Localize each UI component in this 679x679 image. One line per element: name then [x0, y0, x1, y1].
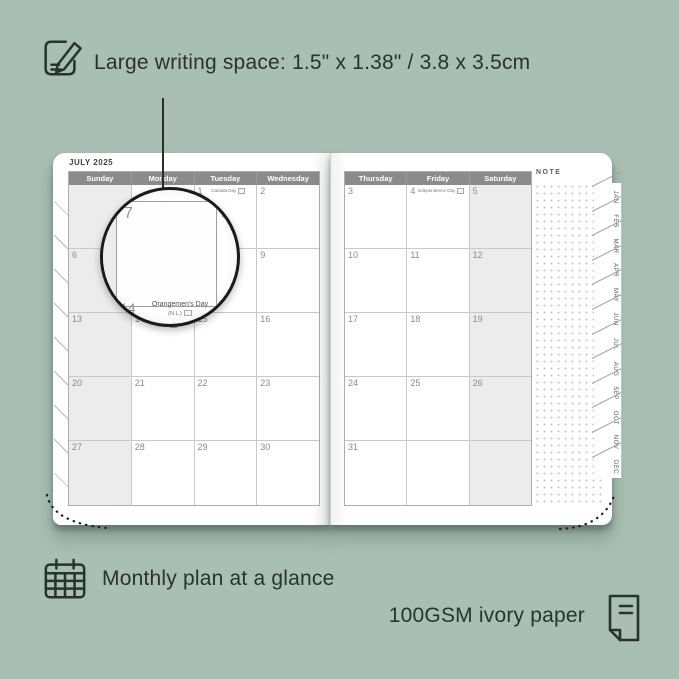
weekday-header: Tuesday	[195, 172, 258, 185]
day-number: 22	[198, 379, 208, 389]
note-label: NOTE	[536, 169, 561, 176]
day-number: 16	[260, 315, 270, 325]
magnified-holiday: Orangemen's Day (N.L.)	[137, 301, 223, 319]
day-number: 18	[410, 315, 420, 325]
flag-icon	[184, 310, 192, 316]
day-number: 3	[348, 187, 353, 197]
calendar-week-row: 20212223	[69, 377, 319, 441]
top-annotation-text: Large writing space: 1.5" x 1.38" / 3.8 …	[94, 51, 530, 82]
day-number: 10	[348, 251, 358, 261]
weekday-header: Friday	[407, 172, 469, 185]
calendar-cell: 20	[69, 377, 132, 441]
product-image: Large writing space: 1.5" x 1.38" / 3.8 …	[0, 0, 679, 679]
weekday-header: Sunday	[69, 172, 132, 185]
magnified-below-day-number: 14	[120, 300, 136, 316]
magnified-holiday-name: Orangemen's Day	[152, 301, 208, 308]
day-number: 31	[348, 443, 358, 453]
calendar-cell	[407, 441, 469, 505]
day-number: 30	[260, 443, 270, 453]
magnified-shaded-column	[103, 190, 117, 324]
magnified-next-day-number: 8	[221, 205, 230, 223]
flag-icon	[238, 188, 245, 194]
day-number: 19	[473, 315, 483, 325]
month-tab: SEP	[594, 380, 622, 405]
holiday-label: Independence Day	[415, 188, 465, 194]
calendar-icon	[42, 556, 88, 602]
month-tab: FEB	[594, 208, 622, 233]
month-tab: DEC	[594, 454, 622, 479]
calendar-cell: 22	[195, 377, 258, 441]
page-seam	[330, 153, 331, 525]
day-number: 28	[135, 443, 145, 453]
calendar-cell: 30	[257, 441, 319, 505]
day-number: 24	[348, 379, 358, 389]
weekday-header: Wednesday	[257, 172, 319, 185]
day-number: 29	[198, 443, 208, 453]
month-tab: OCT	[594, 404, 622, 429]
day-number: 17	[348, 315, 358, 325]
magnified-holiday-region: (N.L.)	[168, 311, 182, 317]
month-title: JULY 2025	[69, 158, 113, 167]
calendar-cell: 4Independence Day	[407, 185, 469, 249]
day-number: 9	[260, 251, 265, 261]
bottom-left-annotation: Monthly plan at a glance	[42, 556, 334, 602]
calendar-cell: 13	[69, 313, 132, 377]
calendar-cell: 31	[345, 441, 407, 505]
month-tab: MAR	[594, 232, 622, 257]
calendar-week-row: 34Independence Day 5	[345, 185, 531, 249]
day-number: 21	[135, 379, 145, 389]
calendar-cell: 10	[345, 249, 407, 313]
bottom-right-annotation-text: 100GSM ivory paper	[389, 604, 585, 628]
bottom-left-annotation-text: Monthly plan at a glance	[102, 567, 334, 591]
calendar-cell: 28	[132, 441, 195, 505]
day-number: 13	[72, 315, 82, 325]
calendar-cell: 18	[407, 313, 469, 377]
month-tab: APR	[594, 257, 622, 282]
day-number: 11	[410, 251, 419, 261]
calendar-cell: 25	[407, 377, 469, 441]
calendar-cell: 9	[257, 249, 319, 313]
day-number: 25	[410, 379, 420, 389]
holiday-label: Canada Day	[203, 188, 254, 194]
day-number: 26	[473, 379, 483, 389]
paper-sheet-icon	[600, 592, 646, 644]
month-tab-label: DEC	[612, 460, 618, 474]
calendar-grid-right: ThursdayFridaySaturday34Independence Day…	[344, 171, 532, 506]
calendar-cell: 3	[345, 185, 407, 249]
day-number: 12	[473, 251, 483, 261]
calendar-cell: 2	[257, 185, 319, 249]
calendar-week-row: 242526	[345, 377, 531, 441]
annotation-pointer-line	[162, 98, 164, 190]
month-tab: JUL	[594, 331, 622, 356]
magnified-day-number: 7	[124, 205, 133, 223]
calendar-cell: 12	[470, 249, 531, 313]
flag-icon	[457, 188, 464, 194]
calendar-week-row: 171819	[345, 313, 531, 377]
weekday-header: Saturday	[470, 172, 531, 185]
month-tab: MAY	[594, 281, 622, 306]
calendar-week-row: 31	[345, 441, 531, 505]
day-number: 27	[72, 443, 82, 453]
calendar-cell	[470, 441, 531, 505]
calendar-cell: 15	[195, 313, 258, 377]
planner-right-page: ThursdayFridaySaturday34Independence Day…	[330, 153, 612, 525]
calendar-cell: 5	[470, 185, 531, 249]
day-number: 5	[473, 187, 478, 197]
calendar-cell: 19	[470, 313, 531, 377]
day-number: 2	[260, 187, 265, 197]
calendar-cell: 21	[132, 377, 195, 441]
weekday-header-row: SundayMondayTuesdayWednesday	[69, 172, 319, 185]
calendar-week-row: 101112	[345, 249, 531, 313]
calendar-cell: 23	[257, 377, 319, 441]
note-pencil-icon	[38, 34, 84, 82]
calendar-cell: 17	[345, 313, 407, 377]
page-curl-dots-right	[557, 492, 619, 534]
calendar-cell: 16	[257, 313, 319, 377]
calendar-cell: 29	[195, 441, 258, 505]
month-tab: AUG	[594, 355, 622, 380]
calendar-cell: 24	[345, 377, 407, 441]
day-number: 20	[72, 379, 82, 389]
calendar-cell: 26	[470, 377, 531, 441]
weekday-header-row: ThursdayFridaySaturday	[345, 172, 531, 185]
page-curl-dots-left	[42, 490, 112, 534]
top-annotation: Large writing space: 1.5" x 1.38" / 3.8 …	[38, 34, 530, 82]
day-number: 6	[72, 251, 77, 261]
tab-cut-line	[592, 171, 622, 187]
month-tab-label: NOV	[612, 435, 618, 450]
month-tab-index: JANFEBMARAPRMAYJUNJULAUGSEPOCTNOVDEC	[594, 183, 621, 478]
weekday-header: Thursday	[345, 172, 407, 185]
day-number: 23	[260, 379, 270, 389]
calendar-cell: 11	[407, 249, 469, 313]
magnifier-circle: 7 8 14 Orangemen's Day (N.L.)	[100, 187, 240, 327]
